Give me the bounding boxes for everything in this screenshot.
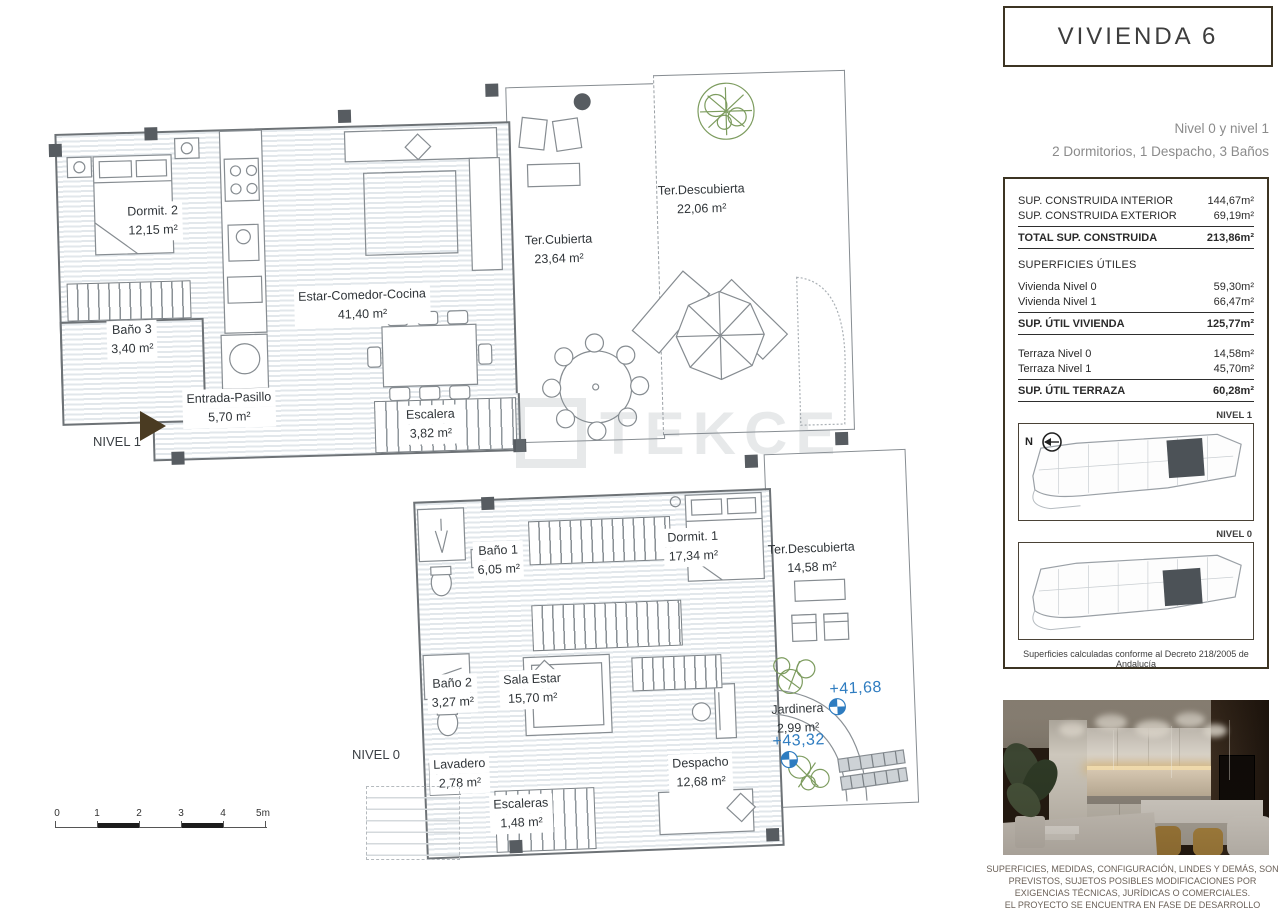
area-row: Vivienda Nivel 0 59,30m² — [1018, 279, 1254, 294]
divider — [1018, 312, 1254, 313]
decree-footnote: Superficies calculadas conforme al Decre… — [1018, 649, 1254, 669]
wardrobe-hall-1 — [528, 516, 672, 565]
tree-glyph — [697, 82, 755, 140]
room-label-estar: Estar-Comedor-Cocina 41,40 m² — [294, 284, 431, 327]
area-label: Vivienda Nivel 1 — [1018, 296, 1097, 308]
area-label: SUP. CONSTRUIDA EXTERIOR — [1018, 210, 1177, 222]
room-label-escaleras: Escaleras 1,48 m² — [489, 793, 553, 834]
room-name: Sala Estar — [499, 669, 565, 691]
scale-bar-line — [55, 827, 267, 828]
divider — [1018, 379, 1254, 380]
area-row: Terraza Nivel 1 45,70m² — [1018, 361, 1254, 376]
room-name: Baño 3 — [106, 320, 157, 341]
subtitle-config: 2 Dormitorios, 1 Despacho, 3 Baños — [1052, 144, 1269, 159]
sofa-corner-glyph — [344, 128, 502, 274]
area-value: 144,67m² — [1208, 195, 1254, 207]
area-value: 45,70m² — [1214, 363, 1254, 375]
nivel0-plan-label: NIVEL 0 — [352, 747, 400, 762]
room-area: 5,70 m² — [183, 407, 276, 429]
room-area: 3,82 m² — [402, 424, 459, 445]
room-label-bano3: Baño 3 3,40 m² — [106, 320, 157, 360]
scale-tick: 4 — [220, 808, 226, 819]
interior-render-photo — [1003, 700, 1269, 855]
room-label-ter-cubierta: Ter.Cubierta 23,64 m² — [521, 230, 597, 271]
area-total-row: TOTAL SUP. CONSTRUIDA 213,86m² — [1018, 230, 1254, 245]
scale-tick: 2 — [136, 808, 142, 819]
area-value: 59,30m² — [1214, 281, 1254, 293]
area-row: Terraza Nivel 0 14,58m² — [1018, 346, 1254, 361]
floorplan-nivel1: Dormit. 2 12,15 m² Baño 3 3,40 m² Estar-… — [47, 64, 854, 478]
column — [338, 110, 351, 123]
room-name: Ter.Cubierta — [521, 230, 597, 251]
sitemap-nivel0 — [1018, 542, 1254, 640]
building-outline-nivel0 — [1019, 543, 1255, 635]
wardrobe-dorm2 — [67, 280, 192, 321]
bench-steps-glyph — [838, 750, 908, 790]
column — [513, 439, 526, 452]
areas-panel: SUP. CONSTRUIDA INTERIOR 144,67m² SUP. C… — [1003, 177, 1269, 669]
sitemap-nivel1-label: NIVEL 1 — [1018, 410, 1252, 421]
area-value: 69,19m² — [1214, 210, 1254, 222]
area-value: 60,28m² — [1213, 385, 1254, 397]
area-label: Vivienda Nivel 0 — [1018, 281, 1097, 293]
nivel0-furniture-drawing — [400, 447, 923, 862]
room-label-dormitorio2: Dormit. 2 12,15 m² — [123, 201, 183, 241]
room-label-bano1: Baño 1 6,05 m² — [473, 540, 525, 581]
scale-tick: 1 — [94, 808, 100, 819]
elevation-value-upper: +41,68 — [829, 679, 882, 699]
highlighted-unit — [1166, 438, 1204, 478]
room-area: 1,48 m² — [490, 813, 554, 835]
room-name: Despacho — [668, 752, 733, 774]
area-label: SUP. ÚTIL VIVIENDA — [1018, 318, 1125, 330]
sitemap-nivel0-label: NIVEL 0 — [1018, 529, 1252, 540]
scale-bar: 0 1 2 3 4 5m — [55, 808, 267, 832]
room-area: 17,34 m² — [664, 546, 723, 568]
room-area: 12,68 m² — [669, 772, 734, 794]
room-area: 6,05 m² — [473, 560, 524, 581]
area-total-row: SUP. ÚTIL TERRAZA 60,28m² — [1018, 383, 1254, 398]
divider — [1018, 226, 1254, 227]
wardrobe-hall-2 — [531, 600, 683, 652]
column — [485, 84, 498, 97]
scale-bar-segment — [97, 823, 139, 828]
highlighted-unit — [1163, 568, 1203, 606]
divider — [1018, 401, 1254, 402]
nivel1-plan-label: NIVEL 1 — [93, 434, 141, 449]
room-name: Baño 2 — [427, 673, 478, 694]
column — [49, 144, 62, 157]
room-name: Ter.Descubierta — [654, 179, 749, 201]
unit-title-box: VIVIENDA 6 — [1003, 6, 1273, 67]
room-label-ter-descubierta-n1: Ter.Descubierta 22,06 m² — [654, 179, 750, 220]
elevation-marker-lower — [781, 751, 798, 768]
room-area: 14,58 m² — [764, 557, 860, 580]
room-name: Dormit. 1 — [663, 527, 722, 549]
room-label-ter-descubierta-n0: Ter.Descubierta 14,58 m² — [764, 537, 860, 579]
unit-title: VIVIENDA 6 — [1058, 23, 1219, 51]
room-label-dormitorio1: Dormit. 1 17,34 m² — [663, 527, 723, 568]
room-name: Jardinera — [767, 699, 828, 721]
area-value: 213,86m² — [1207, 232, 1254, 244]
hedge-curve-glyph — [797, 276, 847, 425]
room-name: Baño 1 — [473, 540, 524, 561]
parasol-loungers-glyph — [631, 268, 789, 382]
room-label-bano2: Baño 2 3,27 m² — [427, 673, 479, 714]
column — [835, 432, 848, 445]
terrace-table-glyph — [791, 579, 849, 641]
disclaimer-line: EL PROYECTO SE ENCUENTRA EN FASE DE DESA… — [985, 899, 1280, 911]
column — [171, 451, 184, 464]
utiles-header: SUPERFICIES ÚTILES — [1018, 259, 1254, 271]
shelf-despacho — [631, 654, 722, 691]
disclaimer-line: PREVISTOS, SUJETOS POSIBLES MODIFICACION… — [985, 875, 1280, 887]
sitemap-nivel1: N — [1018, 423, 1254, 521]
subtitle-levels: Nivel 0 y nivel 1 — [1174, 121, 1269, 136]
round-table-glyph — [541, 332, 650, 441]
scale-tick: 5m — [256, 808, 270, 819]
room-area: 3,27 m² — [427, 692, 478, 713]
room-name: Escaleras — [489, 793, 553, 815]
area-row: SUP. CONSTRUIDA INTERIOR 144,67m² — [1018, 193, 1254, 208]
legal-disclaimer: SUPERFICIES, MEDIDAS, CONFIGURACIÓN, LIN… — [985, 863, 1280, 912]
terrace-lounge-glyph — [518, 116, 583, 187]
column — [766, 828, 779, 841]
area-label: SUP. ÚTIL TERRAZA — [1018, 385, 1125, 397]
area-label: TOTAL SUP. CONSTRUIDA — [1018, 232, 1157, 244]
room-area: 3,40 m² — [107, 339, 158, 360]
room-name: Dormit. 2 — [123, 201, 182, 222]
divider — [1018, 334, 1254, 335]
area-row: Vivienda Nivel 1 66,47m² — [1018, 294, 1254, 309]
elevation-marker-upper — [829, 698, 846, 715]
scale-bar-segment — [181, 823, 223, 828]
room-name: Entrada-Pasillo — [182, 388, 275, 410]
column — [745, 455, 758, 468]
exterior-stairs-dashed — [366, 786, 460, 860]
divider — [1018, 248, 1254, 249]
room-area: 15,70 m² — [500, 688, 566, 710]
room-label-entrada: Entrada-Pasillo 5,70 m² — [182, 388, 276, 429]
north-letter: N — [1025, 436, 1033, 448]
north-indicator: N — [1025, 430, 1065, 454]
room-name: Lavadero — [429, 754, 490, 776]
elevation-value-lower: +43,32 — [772, 731, 825, 751]
area-value: 125,77m² — [1207, 318, 1254, 330]
disclaimer-line: EXIGENCIAS TÉCNICAS, JURÍDICAS O COMERCI… — [985, 887, 1280, 899]
room-name: Ter.Descubierta — [764, 537, 860, 560]
room-label-escalera: Escalera 3,82 m² — [402, 404, 460, 444]
column — [481, 497, 494, 510]
floorplan-nivel0: Baño 1 6,05 m² Dormit. 1 17,34 m² Ter.De… — [400, 447, 923, 862]
photo-shading-overlay — [1003, 700, 1269, 855]
level-marker-triangle — [140, 411, 166, 441]
room-name: Escalera — [402, 404, 459, 425]
area-label: SUP. CONSTRUIDA INTERIOR — [1018, 195, 1173, 207]
kitchen-counter-glyph — [215, 130, 268, 389]
area-total-row: SUP. ÚTIL VIVIENDA 125,77m² — [1018, 316, 1254, 331]
column — [144, 127, 157, 140]
area-label: Terraza Nivel 0 — [1018, 348, 1091, 360]
area-value: 66,47m² — [1214, 296, 1254, 308]
area-label: Terraza Nivel 1 — [1018, 363, 1091, 375]
room-area: 23,64 m² — [521, 249, 597, 270]
room-label-sala-estar: Sala Estar 15,70 m² — [499, 669, 566, 710]
area-value: 14,58m² — [1214, 348, 1254, 360]
room-area: 22,06 m² — [654, 199, 749, 221]
disclaimer-line: SUPERFICIES, MEDIDAS, CONFIGURACIÓN, LIN… — [985, 863, 1280, 875]
room-label-despacho: Despacho 12,68 m² — [668, 752, 734, 793]
area-row: SUP. CONSTRUIDA EXTERIOR 69,19m² — [1018, 208, 1254, 223]
room-area: 12,15 m² — [124, 220, 183, 241]
column — [509, 840, 522, 853]
scale-tick: 3 — [178, 808, 184, 819]
north-arrow-icon — [1035, 430, 1065, 454]
scale-tick: 0 — [54, 808, 60, 819]
room-area: 41,40 m² — [294, 304, 430, 327]
